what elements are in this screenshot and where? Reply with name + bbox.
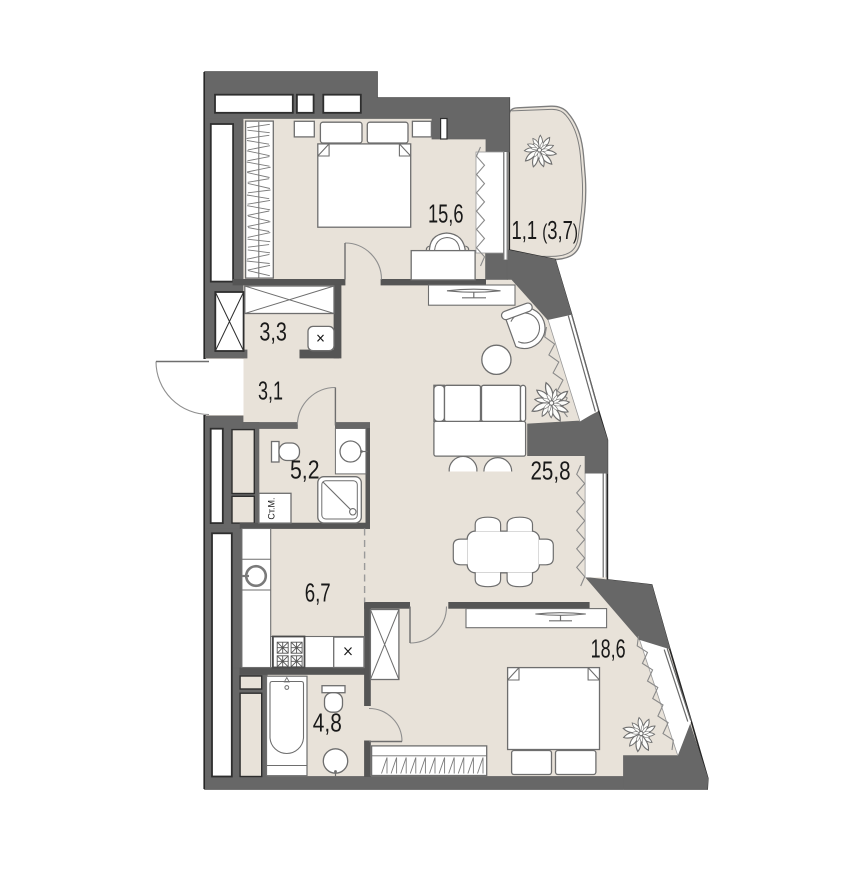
svg-text:15,6: 15,6 [428, 199, 464, 229]
svg-text:1,1 (3,7): 1,1 (3,7) [512, 215, 579, 245]
svg-text:Ст.М.: Ст.М. [266, 497, 276, 519]
svg-text:3,1: 3,1 [258, 376, 283, 406]
svg-text:25,8: 25,8 [531, 456, 571, 486]
svg-text:6,7: 6,7 [305, 578, 331, 608]
svg-text:4,8: 4,8 [313, 708, 342, 738]
svg-text:5,2: 5,2 [290, 455, 320, 485]
svg-text:3,3: 3,3 [259, 317, 287, 347]
svg-text:18,6: 18,6 [591, 634, 626, 664]
